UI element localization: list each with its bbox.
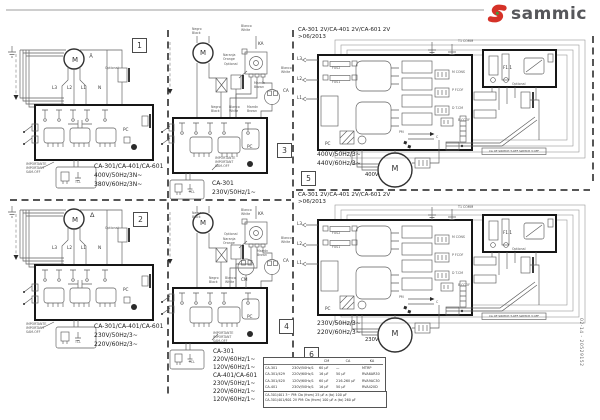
terminal-label: L2 — [67, 85, 72, 90]
panel-number: 1 — [132, 38, 147, 53]
wire-color-label: Blanco White — [241, 209, 252, 217]
wire-color-label: Negro Black — [192, 28, 202, 36]
wire-color-label: Naranja Orange — [223, 238, 235, 246]
panel-number: 5 — [301, 171, 316, 186]
wire-color-label: Blanco White — [241, 25, 252, 33]
panel-number: 4 — [279, 319, 294, 334]
input-label: L2 — [297, 76, 302, 81]
input-label: L1 — [297, 260, 302, 265]
pm-label: PM — [399, 131, 404, 135]
panel-number: 3 — [277, 143, 292, 158]
switch-strip-label: CA OF SWITCH T-OFF SWITCH 3 OFF — [483, 149, 545, 153]
plug-label: TCL — [75, 181, 81, 185]
ground-label: T1 COMM — [458, 206, 473, 210]
optional-label: Optional — [105, 227, 118, 231]
panel-caption: 230V/50Hz/3~ 220V/60Hz/3~ — [317, 320, 361, 338]
input-label: L3 — [297, 56, 302, 61]
ka-switch-label: KA — [258, 41, 264, 46]
table-cell: 50 µF — [335, 384, 361, 390]
terminal-label: N — [98, 245, 101, 250]
pc-label: PC — [123, 127, 128, 132]
connector-label: D T.CM — [452, 272, 463, 276]
motor-icon: M — [197, 219, 209, 227]
wire-color-label: Marrón Brown — [257, 250, 268, 258]
connector-label: M CONS — [452, 236, 465, 240]
input-label: L1 — [297, 95, 302, 100]
wire-color-label: Naranja Orange — [223, 54, 235, 62]
table-cell: CA-401 — [264, 384, 291, 390]
terminal-label: L2 — [67, 245, 72, 250]
panel-4-circuit — [161, 206, 280, 369]
motor-icon: M — [389, 329, 401, 338]
input-label: L2 — [297, 241, 302, 246]
motor-icon: M — [389, 164, 401, 173]
motor-icon: M — [197, 49, 209, 57]
fuse-f11-label: F1.1 — [503, 65, 512, 70]
connector-label: B CCOF — [458, 284, 470, 288]
switch-strip-label: CA OF SWITCH T-OFF SWITCH 3 OFF — [483, 314, 545, 318]
sammic-logo: sammic — [486, 3, 587, 25]
motor-voltage-label: 230V — [365, 337, 378, 343]
wire-color-label: Blanco White — [281, 67, 292, 75]
table-header-cell: CA — [335, 358, 361, 365]
star-connection-icon: Y — [89, 51, 93, 59]
pm-label: PM — [399, 296, 404, 300]
input-label: L3 — [297, 221, 302, 226]
fuse-label: FUS2 — [332, 67, 340, 71]
important-note: IMPORTANTE IMPORTANT SAM-OFF — [213, 332, 233, 344]
table-cell: 16 µF — [318, 384, 335, 390]
plug-label: TCL — [75, 341, 81, 345]
ka-switch-label: KA — [258, 211, 264, 216]
pc-label: PC — [247, 314, 252, 319]
ca-capacitor-label: CA — [283, 258, 289, 263]
table-cell: RVA420D — [361, 384, 383, 390]
connector-label: M CONS — [452, 71, 465, 75]
panel-caption: 400V/50Hz/3~ 440V/60Hz/3~ — [317, 151, 361, 169]
important-note: IMPORTANTE IMPORTANT SAM-OFF — [26, 163, 46, 175]
delta-connection-icon: Δ — [90, 211, 94, 219]
terminal-label: L1 — [81, 85, 86, 90]
panel-header: CA-301 2V/CA-401 2V/CA-601 2V >06/2013 — [298, 27, 390, 42]
ground-label: T1 COMM — [458, 40, 473, 44]
pc-label: PC — [123, 287, 128, 292]
wire-color-label: Blanco White — [225, 277, 236, 285]
connector-label: P FCOF — [452, 89, 463, 93]
wire-color-label: Blanco White — [281, 237, 292, 245]
connector-label: B CCOF — [458, 119, 470, 123]
brand-name: sammic — [511, 4, 587, 24]
ca-capacitor-label: CA — [283, 88, 289, 93]
table-notes: CA-301/401 3~ PM: Da (from) 25 µF a (to)… — [263, 391, 387, 408]
table-header-cell: CM — [318, 358, 335, 365]
wire-color-label: Marrón Brown — [247, 106, 258, 114]
c-label: C — [436, 136, 438, 140]
table-header-cell — [291, 358, 318, 365]
cm-capacitor-icon — [238, 259, 254, 288]
important-note: IMPORTANTE IMPORTANT SAM-OFF — [215, 157, 235, 169]
motor-icon: M — [69, 56, 81, 64]
panel-3-circuit — [161, 36, 280, 199]
terminal-label: N — [98, 85, 101, 90]
fuse-f11-label: F1.1 — [503, 230, 512, 235]
wire-color-label: Negro Black — [192, 212, 202, 220]
optional-label: Optional — [105, 67, 118, 71]
panel-header: CA-301 2V/CA-401 2V/CA-601 2V >06/2013 — [298, 192, 390, 207]
connector-label: P FCOF — [452, 254, 463, 258]
important-note: IMPORTANTE IMPORTANT SAM-OFF — [26, 323, 46, 335]
fuse-label: FUS1 — [332, 81, 340, 85]
pc-label: PC — [325, 306, 330, 311]
pc-label: PC — [325, 141, 330, 146]
wire-color-label: Negro Black — [209, 277, 219, 285]
terminal-label: L3 — [52, 85, 57, 90]
fuse-label: FUS1 — [332, 246, 340, 250]
plug-label: TCL — [189, 361, 195, 365]
motor-icon: M — [69, 216, 81, 224]
optional-label: Optional — [512, 83, 525, 87]
optional-label: Optional — [512, 248, 525, 252]
panel-caption: CA-301 230V/50Hz/1~ — [212, 180, 256, 198]
wiring-diagram-page: sammic 1 M Y L3 L2 L1 N Optional PC IMPO… — [0, 0, 600, 420]
wire-color-label: Negro Black — [211, 106, 221, 114]
panel-caption: CA-301 220V/60Hz/1~ 120V/60Hz/1~ CA-401/… — [213, 348, 257, 404]
capacitor-table: CM CA KA CA-301 230V/50Hz/1 60 µF — MTRP… — [263, 357, 386, 392]
panel-caption: CA-301/CA-401/CA-601 400V/50Hz/3N~ 380V/… — [94, 163, 163, 189]
cm-capacitor-label: CM — [241, 277, 248, 282]
panel-number: 2 — [133, 212, 148, 227]
connector-label: D T.CM — [452, 107, 463, 111]
motor-voltage-label: 400V — [365, 172, 378, 178]
plug-label: TCL — [189, 191, 195, 195]
sammic-logo-icon — [486, 3, 508, 25]
wire-color-label: Blanco White — [229, 106, 240, 114]
panel-caption: CA-301/CA-401/CA-601 230V/50Hz/3~ 220V/6… — [94, 323, 163, 349]
wire-color-label: Marrón Brown — [254, 82, 265, 90]
fuse-label: FUS2 — [332, 232, 340, 236]
table-header-cell — [264, 358, 291, 365]
terminal-label: L3 — [52, 245, 57, 250]
table-header-cell: KA — [361, 358, 383, 365]
optional-label: Optional — [224, 63, 237, 67]
pc-label: PC — [247, 144, 252, 149]
table-cell: 230V/50Hz/1 — [291, 384, 318, 390]
c-label: C — [436, 301, 438, 305]
document-code: 02-14 - 20529152 — [578, 318, 583, 366]
terminal-label: L1 — [81, 245, 86, 250]
